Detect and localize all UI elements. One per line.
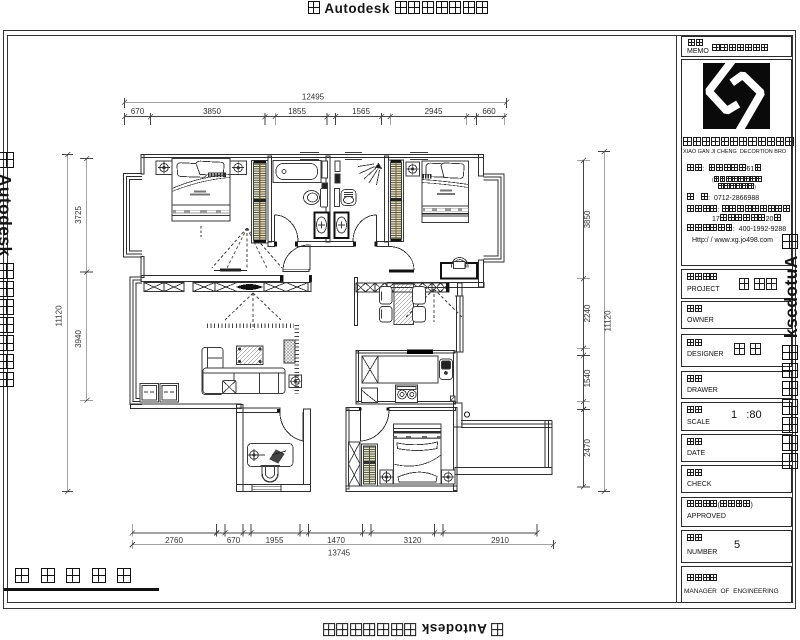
svg-text:3940: 3940 — [74, 330, 83, 348]
svg-text:3850: 3850 — [583, 210, 592, 228]
svg-text:11120: 11120 — [604, 310, 613, 332]
svg-text:1540: 1540 — [583, 369, 592, 387]
svg-text:3120: 3120 — [404, 536, 422, 545]
svg-text:3725: 3725 — [74, 206, 83, 224]
svg-text:1565: 1565 — [352, 107, 370, 116]
svg-text:11120: 11120 — [55, 305, 64, 327]
svg-text:670: 670 — [227, 536, 241, 545]
svg-text:670: 670 — [131, 107, 145, 116]
svg-text:12495: 12495 — [302, 93, 325, 102]
svg-text:1470: 1470 — [327, 536, 345, 545]
svg-text:2470: 2470 — [583, 439, 592, 457]
svg-text:2945: 2945 — [425, 107, 443, 116]
svg-text:2240: 2240 — [583, 304, 592, 322]
svg-text:1855: 1855 — [288, 107, 306, 116]
svg-text:2760: 2760 — [165, 536, 183, 545]
svg-text:13745: 13745 — [328, 549, 351, 558]
svg-text:2910: 2910 — [491, 536, 509, 545]
svg-text:3850: 3850 — [203, 107, 221, 116]
svg-text:1955: 1955 — [266, 536, 284, 545]
svg-text:660: 660 — [482, 107, 496, 116]
